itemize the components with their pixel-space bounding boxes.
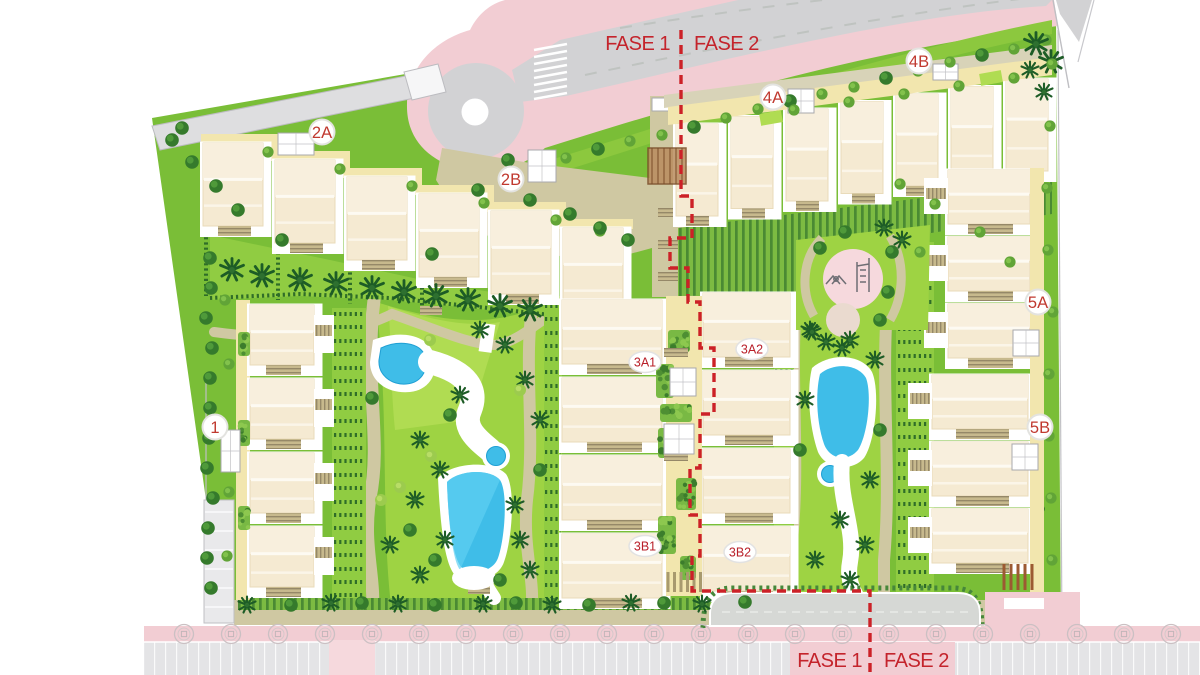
svg-text:5B: 5B xyxy=(1030,419,1050,437)
svg-text:1: 1 xyxy=(210,419,219,437)
svg-text:3A1: 3A1 xyxy=(634,355,656,369)
svg-text:FASE 2: FASE 2 xyxy=(884,650,949,672)
svg-text:4B: 4B xyxy=(909,53,929,71)
svg-text:FASE 1: FASE 1 xyxy=(797,650,862,672)
svg-text:4A: 4A xyxy=(763,89,783,107)
svg-text:2B: 2B xyxy=(501,171,521,189)
svg-text:FASE 1: FASE 1 xyxy=(605,33,670,55)
svg-text:3A2: 3A2 xyxy=(741,342,763,356)
svg-text:FASE 2: FASE 2 xyxy=(694,33,759,55)
svg-text:3B1: 3B1 xyxy=(634,539,656,553)
svg-text:2A: 2A xyxy=(312,124,332,142)
svg-text:3B2: 3B2 xyxy=(729,545,751,559)
svg-text:5A: 5A xyxy=(1028,294,1048,312)
